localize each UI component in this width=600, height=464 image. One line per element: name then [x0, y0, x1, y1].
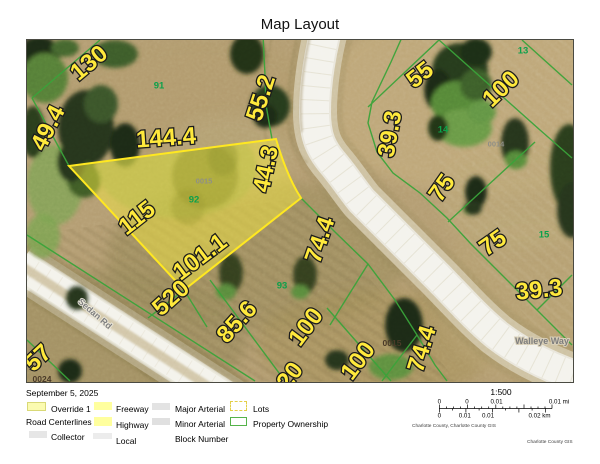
svg-text:15: 15 — [539, 230, 550, 241]
svg-text:Walleye Way: Walleye Way — [515, 336, 569, 346]
svg-text:0.01 mi: 0.01 mi — [549, 399, 569, 406]
svg-text:0.02 km: 0.02 km — [528, 413, 550, 420]
svg-text:14: 14 — [438, 125, 449, 136]
svg-text:0015: 0015 — [383, 338, 402, 348]
svg-text:0015: 0015 — [196, 177, 213, 186]
svg-text:13: 13 — [518, 46, 529, 57]
svg-text:39.3: 39.3 — [514, 274, 563, 306]
svg-text:92: 92 — [189, 195, 200, 206]
svg-text:0024: 0024 — [33, 374, 52, 382]
svg-text:93: 93 — [277, 281, 288, 292]
svg-text:0: 0 — [438, 413, 442, 420]
svg-text:0.01: 0.01 — [482, 413, 495, 420]
svg-text:0014: 0014 — [488, 140, 506, 149]
svg-text:0.01: 0.01 — [490, 399, 503, 406]
svg-text:0.01: 0.01 — [459, 413, 472, 420]
svg-text:0: 0 — [438, 399, 442, 406]
svg-text:144.4: 144.4 — [135, 122, 197, 153]
svg-text:0: 0 — [465, 399, 469, 406]
svg-text:91: 91 — [154, 81, 165, 92]
